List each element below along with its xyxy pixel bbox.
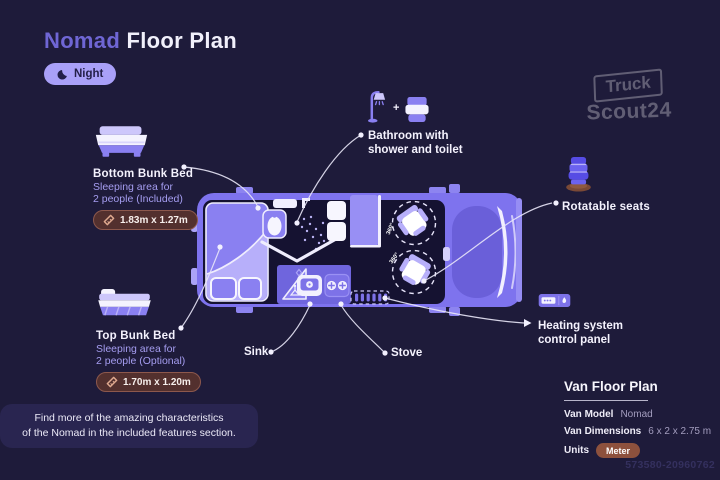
bottom-bunk-dimensions: 1.83m x 1.27m	[120, 215, 188, 226]
page-title: Nomad Floor Plan	[44, 28, 237, 54]
callout-heating: Heating system control panel	[538, 294, 623, 347]
callout-top-bunk: Top Bunk Bed Sleeping area for 2 people …	[96, 289, 201, 393]
sink-unit	[297, 275, 322, 296]
ruler-icon	[103, 214, 115, 226]
units-meter-badge[interactable]: Meter	[596, 443, 640, 458]
page-title-rest: Floor Plan	[120, 28, 237, 53]
logo-scout24: Scout24	[586, 99, 672, 126]
info-panel-divider	[564, 400, 648, 401]
night-mode-toggle[interactable]: Night	[44, 63, 116, 85]
top-bunk-dimensions-badge: 1.70m x 1.20m	[96, 372, 201, 392]
bunk-bed-icon	[93, 126, 150, 157]
stove-label: Stove	[391, 347, 422, 359]
van-info-panel: Van Floor Plan Van Model Nomad Van Dimen…	[564, 379, 716, 458]
shower-icon	[368, 88, 387, 123]
footer-note: Find more of the amazing characteristics…	[0, 404, 258, 448]
footer-note-line1: Find more of the amazing characteristics	[34, 411, 223, 426]
sink-label: Sink	[244, 346, 268, 358]
bunk-bed-icon	[96, 289, 153, 319]
heating-label-line1: Heating system	[538, 319, 623, 333]
heating-label-line2: control panel	[538, 333, 623, 347]
moon-icon	[57, 69, 68, 80]
van-model-label: Van Model	[564, 409, 613, 420]
callout-bottom-bunk: Bottom Bunk Bed Sleeping area for 2 peop…	[93, 126, 198, 231]
plus-icon: +	[393, 102, 399, 114]
page-background: 360° 360° Nomad Floor Plan	[0, 0, 720, 480]
info-panel-title: Van Floor Plan	[564, 379, 716, 394]
ruler-icon	[106, 376, 118, 388]
units-label: Units	[564, 445, 589, 456]
stove-unit	[325, 275, 349, 297]
info-row-van-model: Van Model Nomad	[564, 409, 716, 420]
truckscout24-logo: Truck Scout24	[585, 71, 672, 126]
heating-panel-icon	[538, 294, 571, 307]
van-dimensions-value: 6 x 2 x 2.75 m	[648, 426, 711, 437]
callout-rotatable-seats: Rotatable seats	[562, 156, 650, 213]
rotatable-seats-label: Rotatable seats	[562, 201, 650, 213]
callout-bathroom: + Bathroom with shower and toilet	[368, 88, 463, 157]
bottom-bunk-desc-line2: 2 people (Included)	[93, 194, 198, 206]
night-mode-label: Night	[74, 68, 103, 80]
van-model-value: Nomad	[620, 409, 652, 420]
bathroom-label-line1: Bathroom with	[368, 129, 463, 143]
kitchen	[277, 265, 351, 304]
info-row-units: Units Meter	[564, 443, 716, 458]
bottom-bunk-dimensions-badge: 1.83m x 1.27m	[93, 210, 198, 230]
top-bunk-desc-line1: Sleeping area for	[96, 344, 201, 356]
seat-icon	[565, 156, 592, 192]
bottom-bunk-desc-line1: Sleeping area for	[93, 182, 198, 194]
footer-note-line2: of the Nomad in the included features se…	[22, 426, 236, 441]
van-dimensions-label: Van Dimensions	[564, 426, 641, 437]
info-row-van-dimensions: Van Dimensions 6 x 2 x 2.75 m	[564, 426, 716, 437]
top-bunk-dimensions: 1.70m x 1.20m	[123, 377, 191, 388]
top-bunk-title: Top Bunk Bed	[96, 330, 201, 342]
logo-truck: Truck	[593, 68, 663, 102]
top-bunk-desc-line2: 2 people (Optional)	[96, 356, 201, 368]
bed	[206, 203, 268, 301]
listing-id: 573580-20960762	[625, 459, 715, 471]
page-title-model: Nomad	[44, 28, 120, 53]
bathroom-label-line2: shower and toilet	[368, 143, 463, 157]
bottom-bunk-title: Bottom Bunk Bed	[93, 168, 198, 180]
toilet-icon	[405, 97, 429, 123]
